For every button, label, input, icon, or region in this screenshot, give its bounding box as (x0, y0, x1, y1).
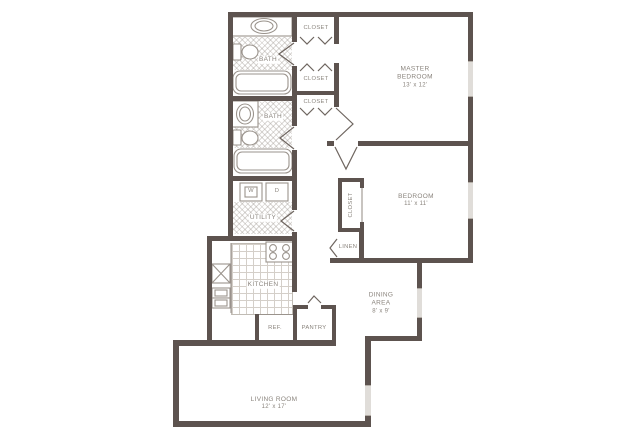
wall (334, 63, 339, 107)
room-dims: 8' x 9' (369, 309, 394, 317)
wall (292, 17, 297, 42)
window (365, 385, 371, 416)
room-name: MASTER (397, 66, 433, 74)
bathtub (234, 149, 292, 173)
wall (255, 314, 259, 341)
pantry-door (308, 296, 321, 303)
wall (173, 421, 371, 427)
cabinet (212, 288, 230, 298)
room-name: AREA (369, 300, 394, 308)
wall (207, 236, 297, 241)
bedroom-door (335, 147, 357, 169)
wall (292, 241, 297, 292)
wall (360, 222, 364, 228)
kitchen-tile-floor (231, 243, 293, 315)
window (468, 61, 473, 97)
bedroom-closet-label: CLOSET (348, 192, 356, 219)
bath-lower-floor (232, 101, 292, 148)
bath-label: BATH (263, 113, 283, 121)
wall (293, 305, 308, 309)
cabinet-inner (215, 300, 227, 306)
dryer-label: D (274, 188, 281, 196)
wall (228, 176, 297, 181)
bathtub-inner (236, 74, 288, 91)
wall (360, 182, 364, 188)
closet-bifold-door (300, 108, 314, 115)
living-room-label: LIVING ROOM 12' x 17' (250, 396, 299, 412)
wall (297, 91, 334, 95)
bathtub-inner (237, 152, 289, 170)
master-bedroom-label: MASTER BEDROOM 13' x 12' (396, 66, 434, 91)
master-bedroom-door (336, 108, 353, 140)
linen-label: LINEN (338, 244, 359, 252)
window (417, 288, 422, 318)
linen-door (330, 239, 337, 257)
wall (321, 305, 336, 309)
utility-label: UTILITY (249, 214, 277, 222)
room-dims: 11' x 11' (398, 201, 434, 209)
wall (468, 12, 473, 263)
cabinet (212, 298, 230, 308)
closet-bifold-door (318, 64, 332, 71)
bath-label: BATH (258, 56, 278, 64)
closet-bifold-door (300, 64, 314, 71)
closet-bifold-door (300, 37, 314, 44)
wall (327, 141, 334, 146)
washer-label: W (247, 188, 255, 196)
wall (330, 258, 473, 263)
bedroom-label: BEDROOM 11' x 11' (397, 193, 435, 209)
wall (338, 178, 342, 232)
wall (228, 12, 233, 241)
wall (173, 340, 179, 427)
ref-label: REF. (267, 325, 283, 333)
sink-basin (255, 21, 273, 31)
wall (228, 12, 473, 17)
pantry-label: PANTRY (301, 325, 328, 333)
closet-bifold-door (318, 37, 332, 44)
kitchen-sink-x (212, 264, 230, 283)
closet-label: CLOSET (303, 25, 330, 33)
room-dims: 13' x 12' (397, 83, 433, 91)
fixtures-layer (0, 0, 640, 432)
cabinet-inner (215, 290, 227, 296)
closet-label: CLOSET (303, 99, 330, 107)
bath-upper-floor (232, 37, 292, 70)
wall (358, 141, 468, 146)
dining-area-label: DINING AREA 8' x 9' (368, 292, 395, 317)
sink (251, 19, 277, 34)
wall (228, 96, 297, 101)
room-dims: 12' x 17' (251, 404, 298, 412)
room-name: DINING (369, 292, 394, 300)
bathtub (233, 71, 291, 94)
room-name: BEDROOM (397, 74, 433, 82)
floor-plan: CLOSET CLOSET CLOSET BATH BATH W D UTILI… (0, 0, 640, 432)
wall (366, 336, 422, 341)
kitchen-sink (212, 264, 230, 283)
closet-bifold-door (318, 108, 332, 115)
wall (359, 228, 364, 262)
window (468, 182, 473, 219)
wall (334, 17, 339, 44)
wall (293, 305, 297, 341)
closet-label: CLOSET (303, 76, 330, 84)
kitchen-label: KITCHEN (247, 281, 280, 289)
room-name: BEDROOM (398, 193, 434, 201)
vanity-counter (232, 17, 292, 36)
room-name: LIVING ROOM (251, 396, 298, 404)
wall (207, 236, 212, 346)
wall (332, 305, 336, 341)
